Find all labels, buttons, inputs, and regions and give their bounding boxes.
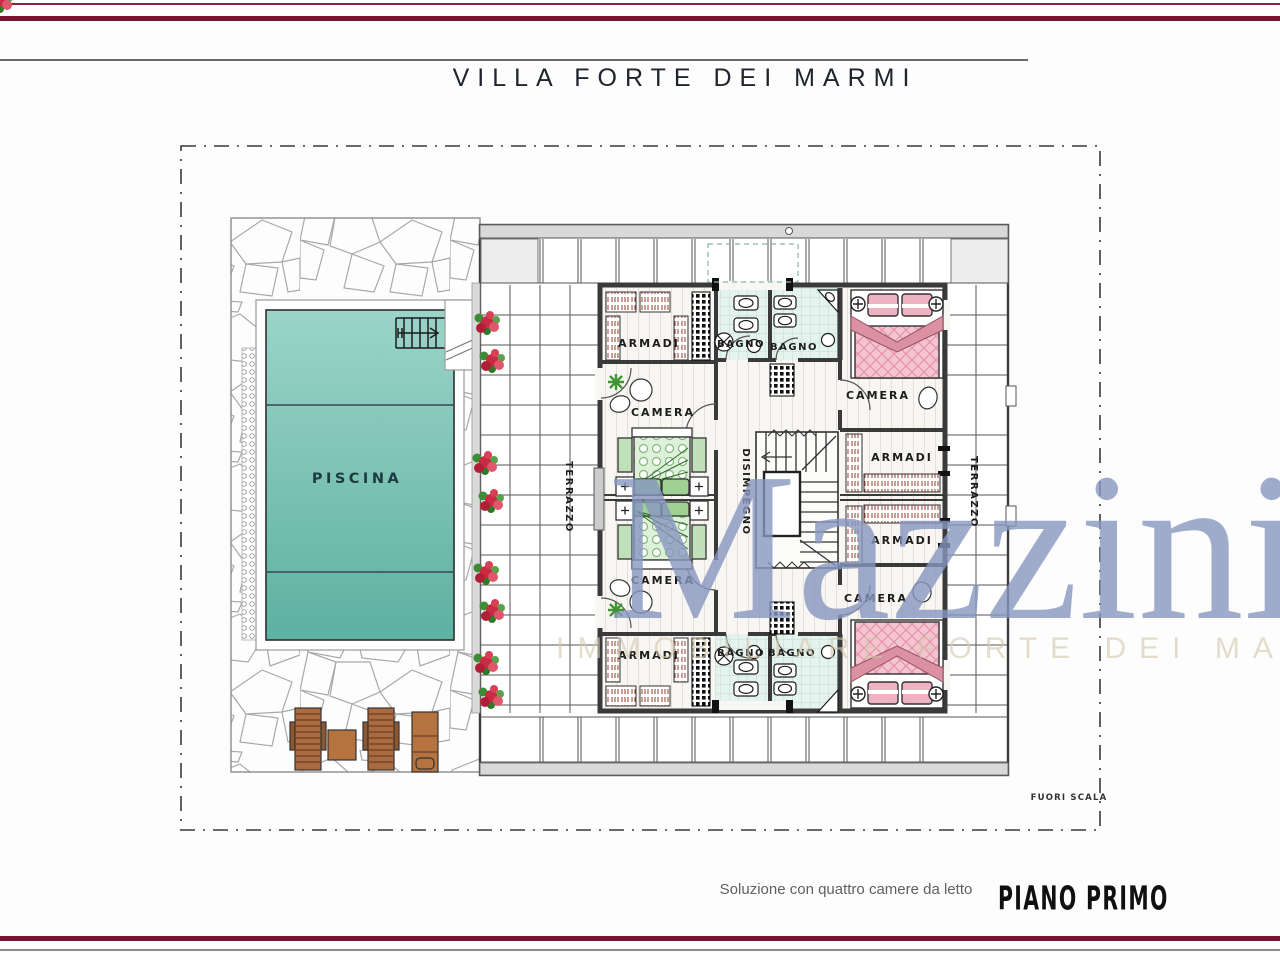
lounger [412, 712, 438, 772]
pool-label: PISCINA [312, 471, 402, 487]
solution-caption: Soluzione con quattro camere da letto [646, 881, 1046, 898]
pool: PISCINA [242, 300, 464, 650]
label-armadi-tl: ARMADI [618, 337, 680, 350]
left-overhang [472, 283, 480, 713]
watermark-name: Mazzini [608, 429, 1280, 664]
lounger [363, 708, 399, 770]
chimney [594, 468, 604, 530]
label-bagno-t1: BAGNO [717, 339, 765, 350]
bottom-rule-gray [0, 949, 1280, 951]
bottom-rule-thick [0, 936, 1280, 941]
bed-pink-top [851, 290, 943, 378]
page: VILLA FORTE DEI MARMI [0, 0, 1280, 960]
lounger [290, 708, 326, 770]
label-camera-tr: CAMERA [846, 389, 910, 402]
floor-plan-drawing: PISCINA [0, 0, 1280, 960]
deck-table [328, 730, 356, 760]
label-bagno-t2: BAGNO [770, 342, 818, 353]
floor-label: PIANO PRIMO [998, 880, 1169, 919]
label-terrazzo-left: TERRAZZO [563, 461, 574, 533]
label-camera-tl: CAMERA [631, 406, 695, 419]
scale-note: FUORI SCALA [1031, 793, 1108, 803]
